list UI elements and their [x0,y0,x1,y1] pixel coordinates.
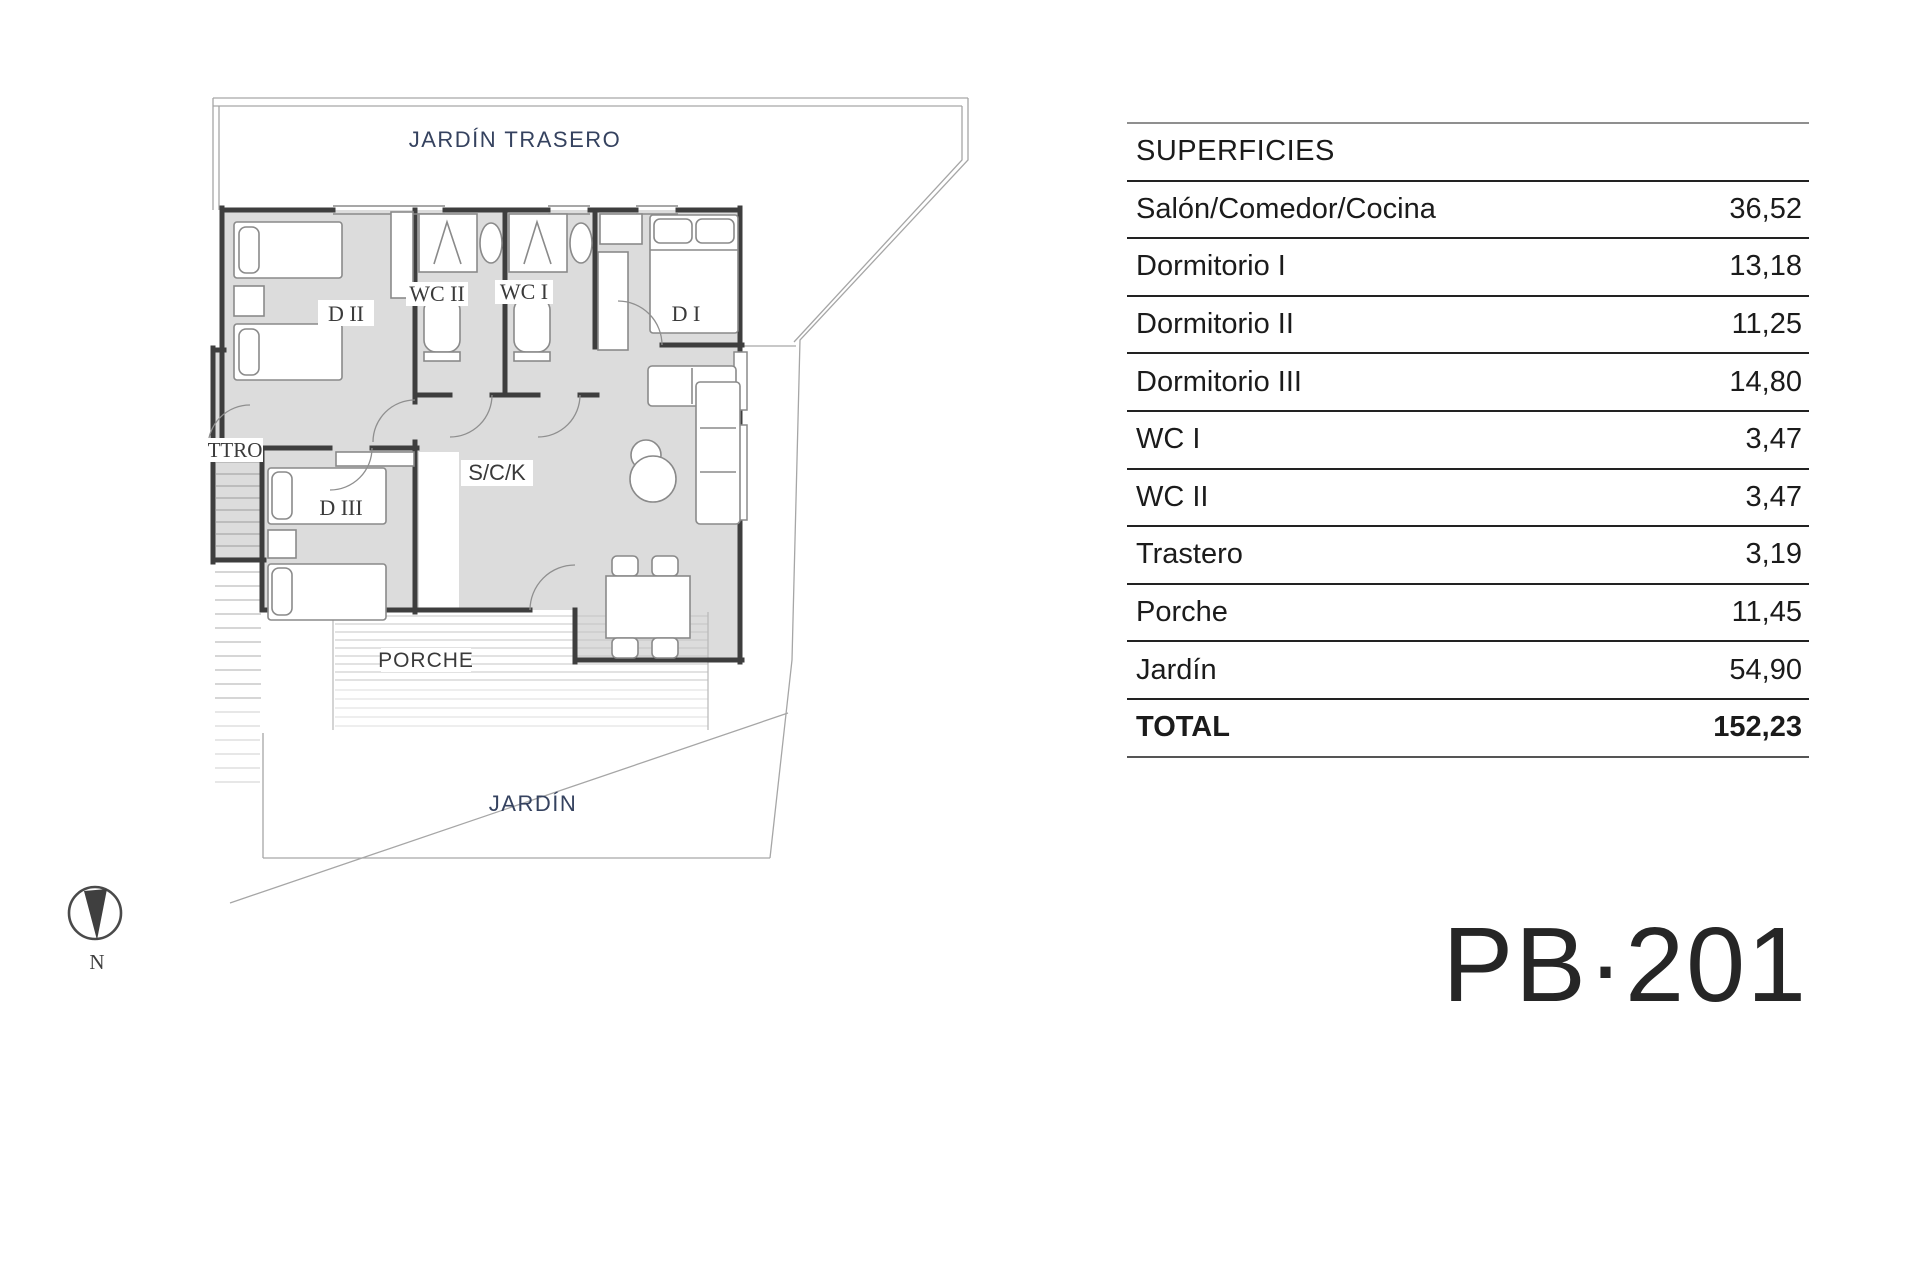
chair-icon [652,556,678,576]
row-value: 54,90 [1729,656,1802,685]
row-label: Jardín [1136,656,1217,685]
row-label: WC II [1136,483,1209,512]
room-label-wc1: WC I [500,279,548,304]
table-row: Jardín 54,90 [1127,642,1809,700]
row-value: 3,19 [1746,540,1802,569]
chair-icon [612,638,638,658]
table-row: Dormitorio I 13,18 [1127,239,1809,297]
back-garden-label: JARDÍN TRASERO [409,127,622,152]
room-label-d2: D II [328,301,364,326]
toilet-tank-wc1 [514,352,550,361]
compass-n-label: N [89,950,104,974]
pillow-icon [654,219,692,243]
toilet-wc2 [424,298,460,352]
row-label: Dormitorio II [1136,310,1294,339]
row-value: 11,25 [1732,310,1802,339]
row-value: 11,45 [1732,598,1802,627]
table-row: Salón/Comedor/Cocina 36,52 [1127,182,1809,240]
table-title: SUPERFICIES [1136,137,1335,166]
room-label-wc2: WC II [409,281,465,306]
toilet-tank-wc2 [424,352,460,361]
sofa-sck [696,382,740,524]
row-label: Dormitorio I [1136,252,1286,281]
chair-icon [612,556,638,576]
total-value: 152,23 [1713,713,1802,742]
plan-id: PB·201 [1442,912,1808,1018]
dining-table [606,576,690,638]
room-label-d3: D III [319,495,362,520]
total-label: TOTAL [1136,713,1230,742]
exterior-steps [215,572,261,698]
side-table [630,456,676,502]
table-row: Dormitorio II 11,25 [1127,297,1809,355]
porch-label: PORCHE [378,649,474,672]
row-label: Dormitorio III [1136,368,1302,397]
entrance-hall [419,452,459,608]
row-label: WC I [1136,425,1200,454]
table-row: WC I 3,47 [1127,412,1809,470]
room-label-d1: D I [672,301,701,326]
table-row: Trastero 3,19 [1127,527,1809,585]
floor-plan: JARDÍN TRASERO D II WC II WC I D I TTRO … [0,0,1000,1280]
table-header-row: SUPERFICIES [1127,124,1809,182]
porch-lower-decking [335,690,708,726]
row-value: 3,47 [1746,483,1802,512]
pillow-icon [272,568,292,615]
table-row: WC II 3,47 [1127,470,1809,528]
pillow-icon [239,227,259,273]
row-value: 36,52 [1729,195,1802,224]
sink-wc2 [480,223,502,263]
row-label: Trastero [1136,540,1243,569]
row-value: 13,18 [1729,252,1802,281]
garden-steps [215,712,260,782]
row-label: Porche [1136,598,1228,627]
cabinet-d1 [600,214,642,244]
row-value: 3,47 [1746,425,1802,454]
shelf-d3 [336,452,414,466]
chair-icon [652,638,678,658]
pillow-icon [696,219,734,243]
row-label: Salón/Comedor/Cocina [1136,195,1436,224]
garden-label: JARDÍN [489,791,577,816]
table-row: Dormitorio III 14,80 [1127,354,1809,412]
table-total-row: TOTAL 152,23 [1127,700,1809,758]
nightstand-d3 [268,530,296,558]
table-row: Porche 11,45 [1127,585,1809,643]
surfaces-table: SUPERFICIES Salón/Comedor/Cocina 36,52 D… [1127,122,1809,758]
pillow-icon [239,329,259,375]
sink-wc1 [570,223,592,263]
toilet-wc1 [514,298,550,352]
room-label-ttro: TTRO [208,438,263,462]
north-arrow-icon: N [69,887,121,974]
pillow-icon [272,472,292,519]
nightstand-d2 [234,286,264,316]
row-value: 14,80 [1729,368,1802,397]
room-label-sck: S/C/K [468,460,526,485]
